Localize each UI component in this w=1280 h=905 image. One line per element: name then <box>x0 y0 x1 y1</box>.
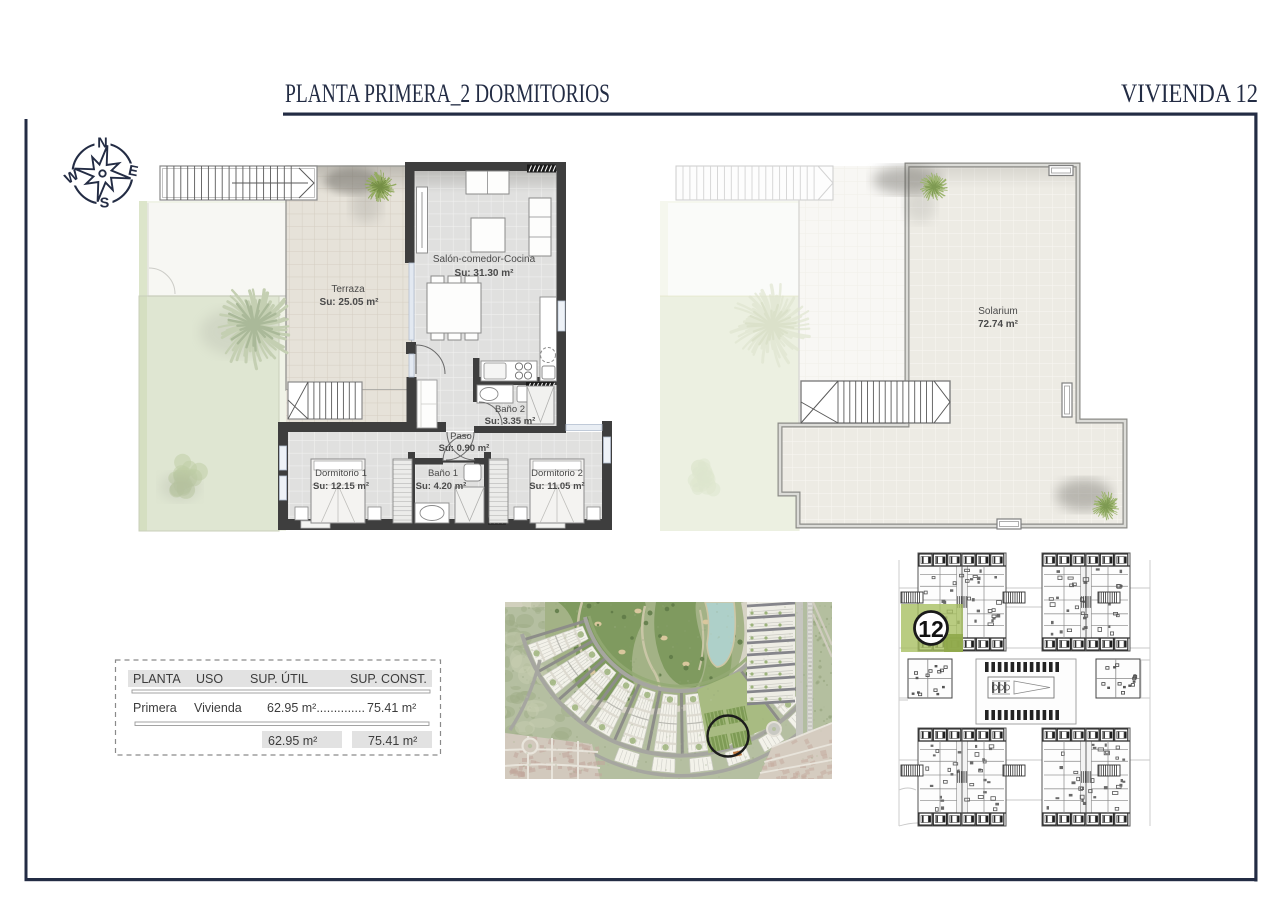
svg-text:VIVIENDA 12: VIVIENDA 12 <box>1121 79 1258 108</box>
svg-text:Baño 1: Baño 1 <box>428 468 458 479</box>
svg-text:Su: 0.90 m²: Su: 0.90 m² <box>439 443 490 454</box>
svg-text:Salón-comedor-Cocina: Salón-comedor-Cocina <box>433 254 536 265</box>
svg-text:Su: 11.05 m²: Su: 11.05 m² <box>529 481 584 492</box>
svg-text:SUP. CONST.: SUP. CONST. <box>350 672 427 686</box>
svg-text:Paso: Paso <box>450 431 472 442</box>
svg-text:12: 12 <box>918 616 944 642</box>
svg-text:Solarium: Solarium <box>978 306 1017 317</box>
svg-text:75.41 m²: 75.41 m² <box>367 701 416 715</box>
svg-text:Dormitorio 1: Dormitorio 1 <box>315 468 367 479</box>
svg-text:62.95 m²..............: 62.95 m².............. <box>267 701 365 715</box>
svg-text:Dormitorio 2: Dormitorio 2 <box>531 468 583 479</box>
svg-text:Su: 31.30 m²: Su: 31.30 m² <box>455 268 515 279</box>
svg-text:Su: 25.05 m²: Su: 25.05 m² <box>320 297 380 308</box>
svg-text:Terraza: Terraza <box>331 284 365 295</box>
svg-text:USO: USO <box>196 672 223 686</box>
svg-text:72.74 m²: 72.74 m² <box>978 319 1019 330</box>
svg-text:Su: 3.35 m²: Su: 3.35 m² <box>485 416 536 427</box>
svg-text:75.41 m²: 75.41 m² <box>368 734 417 748</box>
svg-text:Su: 12.15 m²: Su: 12.15 m² <box>313 481 369 492</box>
svg-text:S: S <box>100 196 110 212</box>
svg-text:Primera: Primera <box>133 701 177 715</box>
svg-text:Su: 4.20 m²: Su: 4.20 m² <box>416 481 467 492</box>
svg-text:Baño 2: Baño 2 <box>495 404 525 415</box>
svg-text:Vivienda: Vivienda <box>194 701 242 715</box>
svg-text:62.95 m²: 62.95 m² <box>268 734 317 748</box>
svg-text:SUP. ÚTIL: SUP. ÚTIL <box>250 671 308 686</box>
svg-text:PLANTA PRIMERA_2 DORMITORIOS: PLANTA PRIMERA_2 DORMITORIOS <box>285 79 610 108</box>
svg-text:PLANTA: PLANTA <box>133 672 181 686</box>
svg-text:N: N <box>97 136 107 152</box>
